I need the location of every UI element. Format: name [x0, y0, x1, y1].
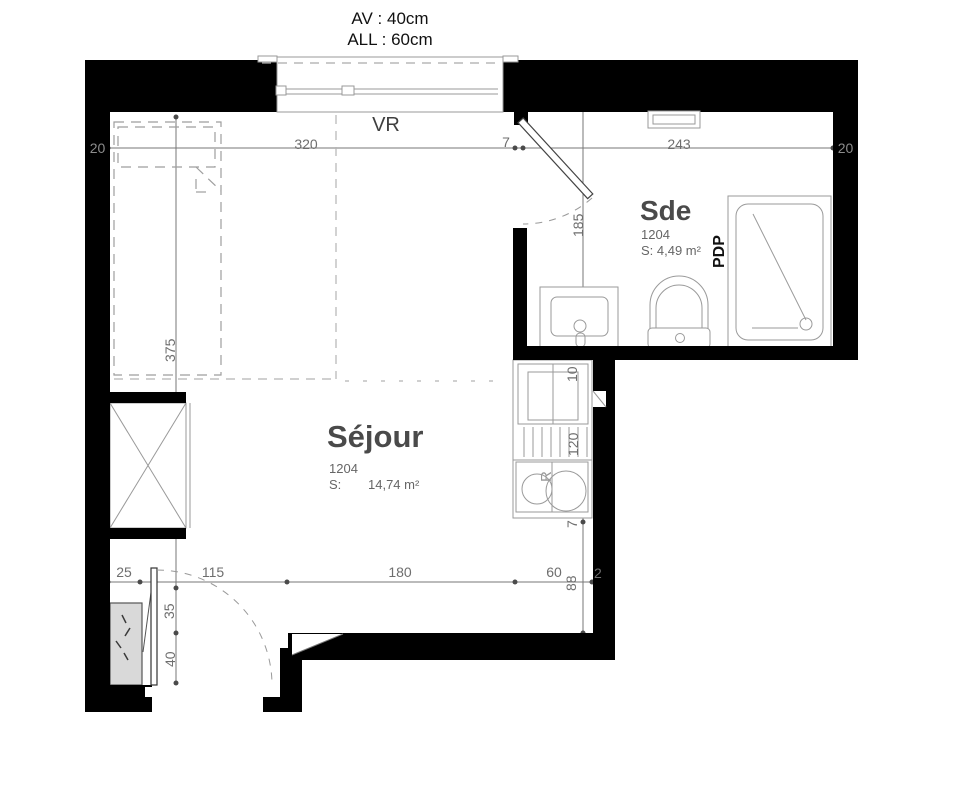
dim-k-7: 7 — [564, 520, 580, 528]
sde-area: S: 4,49 m² — [641, 243, 701, 258]
floor-plan: AV : 40cm ALL : 60cm VR 20 320 7 243 20 … — [0, 0, 960, 800]
dim-k-120: 120 — [565, 433, 581, 456]
dim-bottom-60: 60 — [541, 564, 567, 580]
dim-sde-185: 185 — [570, 214, 586, 237]
kitchen-r-label: R — [538, 471, 555, 482]
dim-top-243: 243 — [659, 136, 699, 152]
sejour-lot: 1204 — [329, 461, 358, 476]
dim-top-320: 320 — [287, 136, 325, 152]
sde-name: Sde — [640, 195, 691, 227]
wall-niche — [648, 111, 700, 128]
dim-bottom-115: 115 — [195, 564, 231, 580]
window-heights-note: AV : 40cm ALL : 60cm — [322, 8, 458, 50]
dim-bottom-25: 25 — [112, 564, 136, 580]
note-all: ALL : 60cm — [322, 29, 458, 50]
dim-top-7: 7 — [499, 134, 513, 150]
sejour-name: Séjour — [327, 419, 423, 455]
sde-lot: 1204 — [641, 227, 670, 242]
dim-k-10: 10 — [564, 366, 580, 382]
dim-entry-35: 35 — [161, 603, 177, 619]
plan-openings-layer — [0, 0, 960, 800]
dim-left-375: 375 — [162, 339, 178, 362]
pdp-label: PDP — [711, 235, 729, 268]
dim-entry-40: 40 — [162, 651, 178, 667]
dim-top-wall-left: 20 — [86, 140, 109, 156]
note-av: AV : 40cm — [322, 8, 458, 29]
entry-door — [143, 568, 272, 685]
window — [258, 56, 518, 112]
sde-door — [518, 118, 593, 224]
window-vr-label: VR — [361, 114, 411, 137]
dim-top-wall-right: 20 — [834, 140, 857, 156]
sejour-area-label: S: — [329, 477, 341, 492]
dim-k-2: 2 — [594, 565, 602, 581]
dim-bottom-180: 180 — [382, 564, 418, 580]
sejour-area: 14,74 m² — [368, 477, 419, 492]
